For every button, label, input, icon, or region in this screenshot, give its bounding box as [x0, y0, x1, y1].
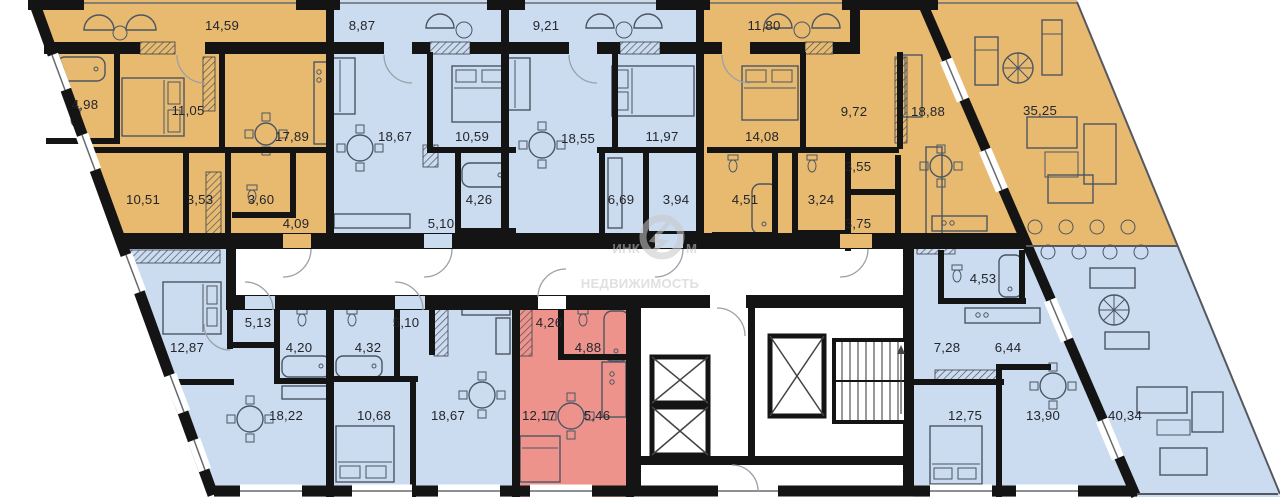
- floor-plan-drawing: 14,59 4,98 11,05 17,89 10,51 3,53 3,60 4…: [0, 0, 1280, 503]
- area-label-u3-living: 18,55: [561, 131, 595, 146]
- area-label-u6-living: 18,67: [431, 408, 465, 423]
- area-label-u6-hall: 5,10: [393, 315, 419, 330]
- area-label-u5-bedroom: 12,87: [170, 340, 204, 355]
- area-label-u1-bedroom: 11,05: [171, 103, 204, 118]
- area-label-u4-room: 9,72: [841, 104, 867, 119]
- area-label-u2-bedroom: 10,59: [455, 129, 489, 144]
- unit-blue-top-2: [330, 0, 505, 248]
- area-label-u4-terrace: 35,25: [1023, 103, 1057, 118]
- area-label-u4-hall2: 3,75: [845, 216, 871, 231]
- area-label-u8-bedroom: 12,75: [948, 408, 982, 423]
- area-label-u5-bath: 4,20: [286, 340, 312, 355]
- area-label-u3-balcony: 9,21: [533, 18, 559, 33]
- area-label-u3-bath: 3,94: [663, 192, 689, 207]
- stairs-icon: [834, 340, 906, 422]
- area-label-u7-bath: 4,88: [575, 340, 601, 355]
- area-label-u1-room: 10,51: [126, 192, 160, 207]
- area-label-u1-wc: 3,60: [248, 192, 274, 207]
- area-label-u4-bath2: 3,24: [808, 192, 834, 207]
- area-label-u3-bedroom: 11,97: [645, 129, 678, 144]
- area-label-u1-living: 17,89: [275, 129, 309, 144]
- area-label-u2-living: 18,67: [378, 129, 412, 144]
- elevator-icon: [652, 407, 708, 455]
- area-label-u4-bath1: 4,51: [732, 192, 758, 207]
- area-label-u8-kitchen: 6,44: [995, 340, 1021, 355]
- area-label-u8-living: 13,90: [1026, 408, 1060, 423]
- area-label-u2-balcony: 8,87: [349, 18, 375, 33]
- elevator-icon: [652, 357, 708, 403]
- area-label-u7-entry: 4,26: [536, 315, 562, 330]
- area-label-u1-balcony: 14,59: [205, 18, 239, 33]
- area-label-u8-hall: 7,28: [934, 340, 960, 355]
- area-label-u7-room: 12,17: [522, 408, 556, 423]
- area-label-u7-kitchen: 5,46: [584, 408, 610, 423]
- unit-red-studio: [516, 297, 630, 497]
- umbrella-icon: [1003, 53, 1033, 83]
- umbrella-icon: [1099, 295, 1129, 325]
- elevator-icon: [770, 336, 824, 416]
- watermark-brand-left: ИНК: [612, 241, 640, 256]
- area-label-u1-entry: 4,09: [283, 216, 309, 231]
- area-label-u8-terrace: 40,34: [1108, 408, 1142, 423]
- watermark-brand-right: М: [686, 241, 697, 256]
- area-label-u2-hall: 5,10: [428, 216, 454, 231]
- area-label-u5-living: 18,22: [269, 408, 303, 423]
- area-label-u4-balcony: 11,80: [747, 18, 780, 33]
- watermark-subtitle: НЕДВИЖИМОСТЬ: [581, 276, 700, 291]
- area-label-u6-bath: 4,32: [355, 340, 381, 355]
- area-label-u4-bedroom: 14,08: [745, 129, 779, 144]
- area-label-u4-hall: 3,55: [845, 159, 871, 174]
- area-label-u4-living: 18,88: [911, 104, 945, 119]
- unit-blue-bottom-2: [330, 297, 516, 497]
- area-label-u1-hall: 3,53: [187, 192, 213, 207]
- area-label-u5-hall: 5,13: [245, 315, 271, 330]
- floor-plan-page: 14,59 4,98 11,05 17,89 10,51 3,53 3,60 4…: [0, 0, 1280, 503]
- area-label-u8-bath: 4,53: [970, 271, 996, 286]
- area-label-u6-bedroom: 10,68: [357, 408, 391, 423]
- area-label-u3-kitchen: 6,69: [608, 192, 634, 207]
- area-label-u2-bath: 4,26: [466, 192, 492, 207]
- area-label-u1-bath: 4,98: [72, 97, 98, 112]
